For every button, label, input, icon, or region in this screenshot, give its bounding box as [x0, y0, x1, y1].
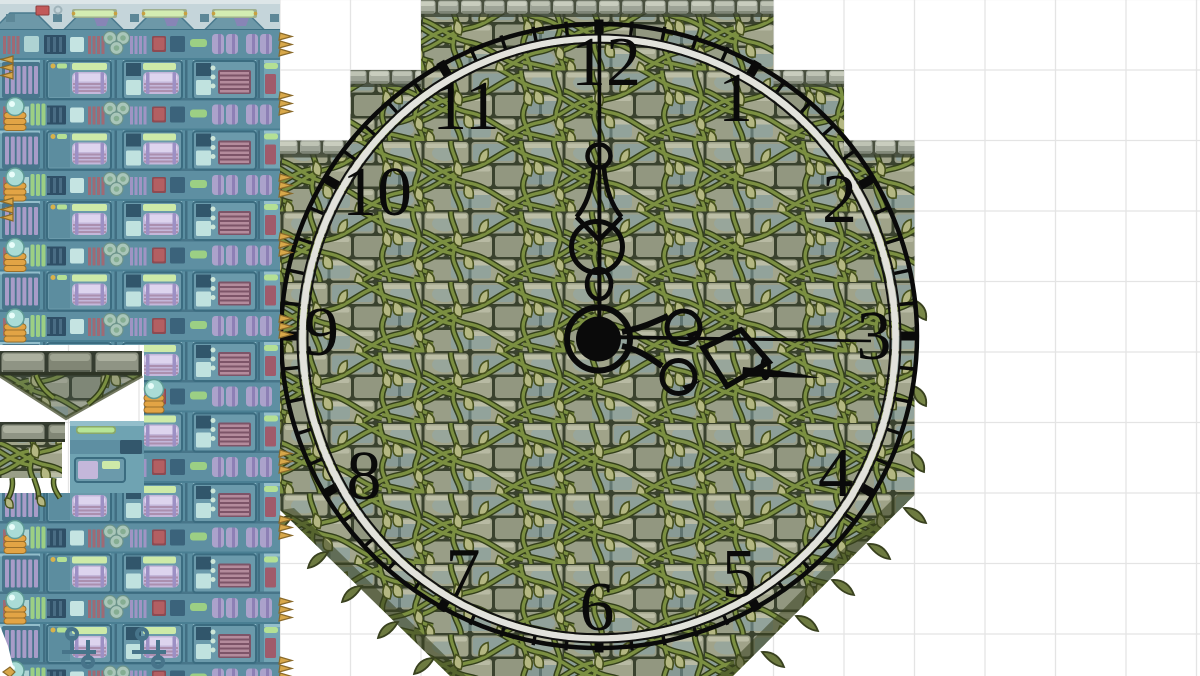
svg-text:9: 9 — [304, 294, 339, 371]
svg-text:3: 3 — [857, 298, 892, 375]
svg-text:11: 11 — [432, 68, 499, 145]
svg-text:7: 7 — [446, 535, 481, 612]
svg-text:2: 2 — [822, 161, 857, 238]
svg-text:12: 12 — [571, 24, 641, 101]
svg-text:1: 1 — [718, 60, 753, 137]
svg-text:8: 8 — [347, 438, 382, 515]
svg-text:6: 6 — [580, 569, 615, 646]
svg-text:5: 5 — [722, 536, 757, 613]
svg-text:4: 4 — [818, 435, 853, 512]
svg-text:10: 10 — [342, 154, 412, 231]
